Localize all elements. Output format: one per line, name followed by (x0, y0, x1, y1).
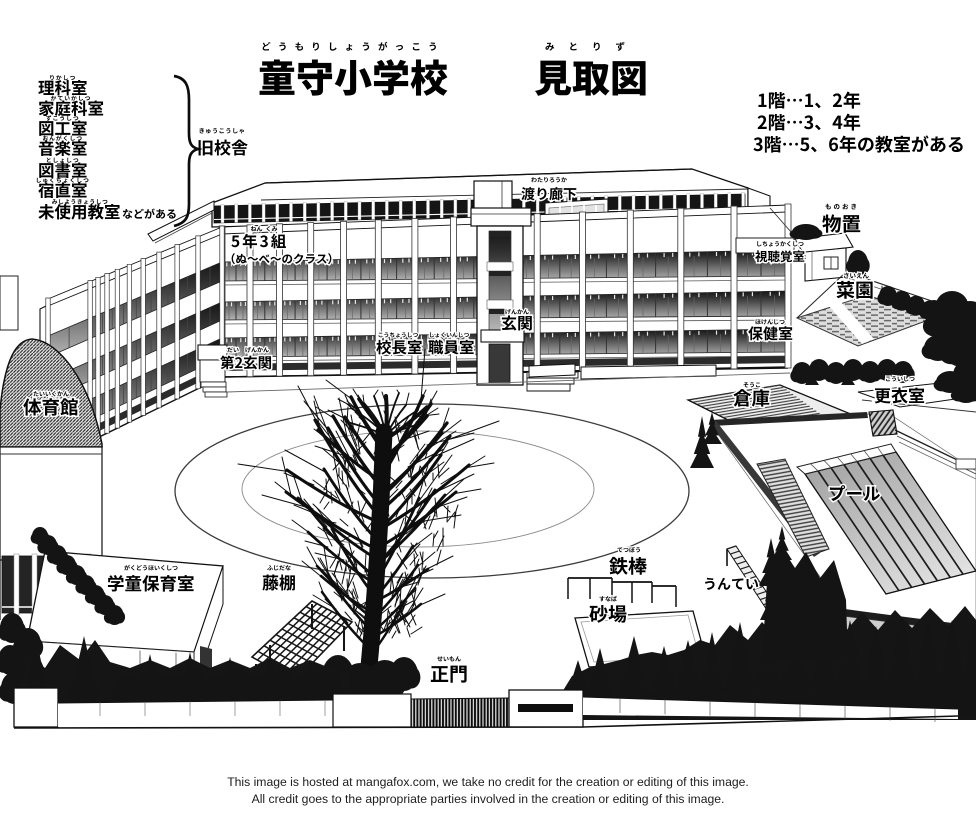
svg-text:This image is hosted at mangaf: This image is hosted at mangafox.com, we… (227, 775, 749, 789)
svg-text:All credit goes to the appropr: All credit goes to the appropriate parti… (252, 792, 725, 806)
